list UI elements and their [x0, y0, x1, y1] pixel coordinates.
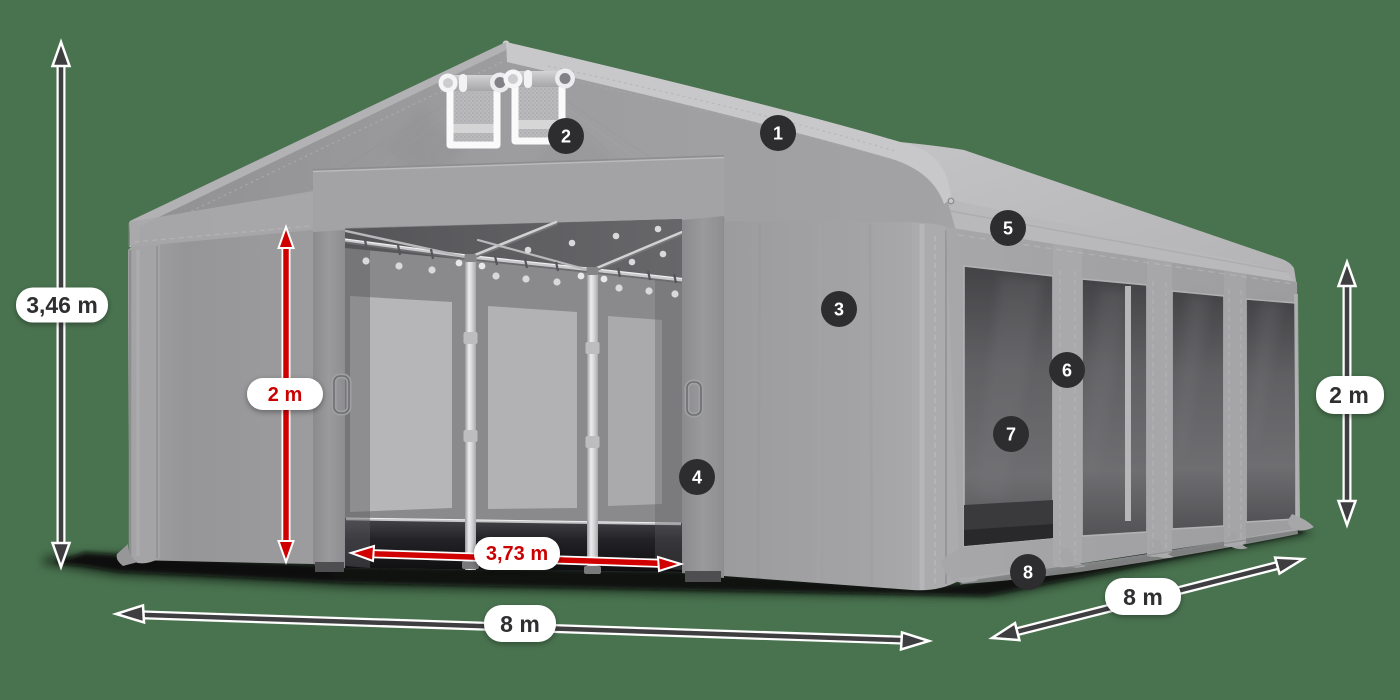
svg-text:4: 4 — [692, 468, 702, 488]
svg-text:8 m: 8 m — [500, 611, 540, 637]
svg-text:1: 1 — [773, 124, 783, 144]
svg-text:5: 5 — [1003, 219, 1013, 239]
svg-text:2: 2 — [561, 127, 571, 147]
svg-text:6: 6 — [1062, 361, 1072, 381]
svg-text:2 m: 2 m — [268, 384, 302, 406]
svg-text:2 m: 2 m — [1329, 382, 1369, 408]
svg-text:3,73 m: 3,73 m — [486, 543, 548, 565]
svg-text:3: 3 — [834, 300, 844, 320]
svg-text:8: 8 — [1023, 563, 1033, 583]
svg-text:8 m: 8 m — [1123, 584, 1163, 610]
svg-text:7: 7 — [1006, 425, 1016, 445]
svg-text:3,46 m: 3,46 m — [26, 292, 98, 318]
